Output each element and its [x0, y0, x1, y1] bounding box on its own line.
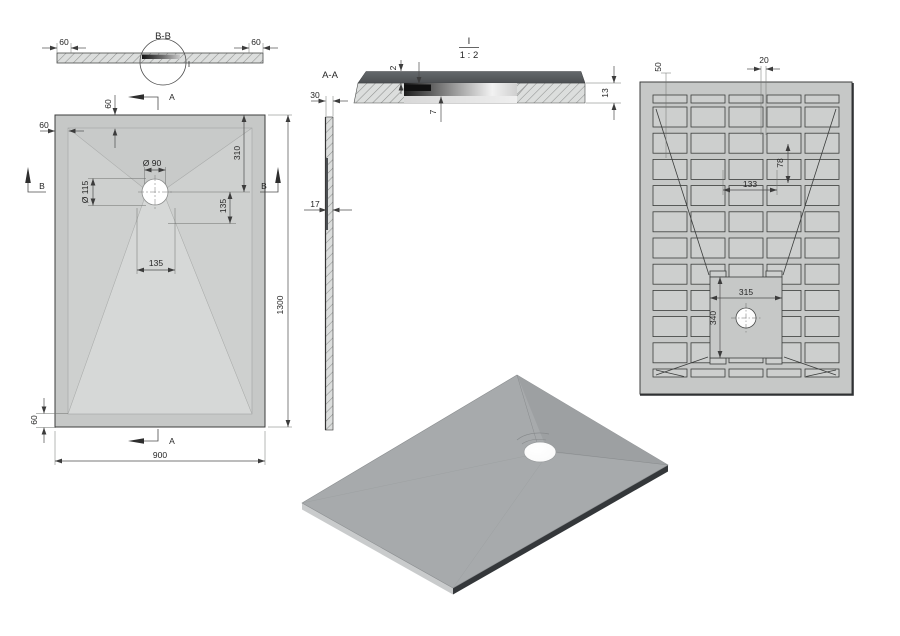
- pocket-cell: [729, 133, 763, 153]
- dim-plan-drain-offset-v: 135: [218, 199, 228, 213]
- pocket-cell: [767, 107, 801, 127]
- pocket-cell: [691, 159, 725, 179]
- section-aa-view: A-A 30 17: [304, 70, 352, 430]
- dim-plan-length: 1300: [275, 295, 285, 314]
- pocket-cell: [653, 264, 687, 284]
- section-a-label-top: A: [169, 92, 175, 102]
- plan-view: A 60 60 Ø 90 Ø 115 3: [25, 92, 292, 465]
- technical-drawing-svg: B-B I 60 60 A 60: [0, 0, 900, 636]
- pocket-cell: [805, 95, 839, 103]
- dim-plan-width: 900: [153, 450, 167, 460]
- pocket-cell: [767, 238, 801, 258]
- section-b-label-left: B: [39, 181, 45, 191]
- pocket-cell: [653, 238, 687, 258]
- dim-plan-rim-left: 60: [39, 120, 49, 130]
- pocket-cell: [653, 290, 687, 310]
- pocket-cell: [729, 369, 763, 377]
- pocket-cell: [729, 107, 763, 127]
- detail-i-title: I: [468, 36, 471, 47]
- dim-bottom-recess-h: 340: [708, 311, 718, 325]
- dim-bb-edge-left: 60: [59, 37, 69, 47]
- detail-callout-label: I: [188, 60, 190, 69]
- section-bb-drain-channel: [142, 55, 180, 60]
- pocket-cell: [805, 133, 839, 153]
- pocket-cell: [691, 238, 725, 258]
- dim-bottom-pocket-h: 78: [775, 158, 785, 168]
- section-b-label-right: B: [261, 181, 267, 191]
- dim-aa-height: 30: [310, 90, 320, 100]
- detail-top-surface: [358, 72, 585, 84]
- pocket-cell: [729, 95, 763, 103]
- pocket-cell: [767, 212, 801, 232]
- pocket-cell: [767, 186, 801, 206]
- pocket-cell: [805, 159, 839, 179]
- bottom-view: 50 20 78 133 315 340: [640, 55, 853, 395]
- pocket-cell: [653, 159, 687, 179]
- pocket-cell: [691, 107, 725, 127]
- pocket-cell: [805, 186, 839, 206]
- dim-bb-edge-right: 60: [251, 37, 261, 47]
- dim-plan-drain-dia: Ø 90: [143, 158, 162, 168]
- section-aa-title: A-A: [322, 70, 339, 81]
- detail-i-view: I 1 : 2 2 7 13: [354, 36, 621, 122]
- dim-plan-drain-offset-h: 135: [149, 258, 163, 268]
- pocket-cell: [653, 107, 687, 127]
- dim-plan-recess-dia: Ø 115: [80, 180, 90, 203]
- section-a-arrow-top: [128, 94, 144, 100]
- section-aa-drain-zone: [326, 158, 328, 230]
- section-b-marker-left: B: [25, 167, 46, 192]
- section-a-label-bottom: A: [169, 436, 175, 446]
- pocket-cell: [729, 238, 763, 258]
- pocket-cell: [653, 343, 687, 363]
- pocket-cell: [805, 343, 839, 363]
- pocket-cell: [767, 95, 801, 103]
- dim-detail-total: 13: [600, 88, 610, 98]
- pocket-cell: [653, 186, 687, 206]
- dim-aa-wall: 17: [310, 199, 320, 209]
- detail-channel-step: [404, 85, 431, 92]
- pocket-cell: [691, 212, 725, 232]
- pocket-cell: [691, 95, 725, 103]
- pocket-cell: [691, 369, 725, 377]
- dim-plan-rim-top: 60: [103, 99, 113, 109]
- pocket-cell: [805, 264, 839, 284]
- pocket-cell: [653, 212, 687, 232]
- pocket-cell: [691, 186, 725, 206]
- detail-i-scale: 1 : 2: [460, 50, 479, 61]
- dim-plan-rim-bottom: 60: [29, 415, 39, 425]
- section-a-arrow-bottom: [128, 438, 144, 444]
- pocket-cell: [653, 95, 687, 103]
- dim-bottom-recess-w: 315: [739, 287, 753, 297]
- dim-bottom-pocket-w: 133: [743, 179, 757, 189]
- pocket-cell: [691, 133, 725, 153]
- pocket-cell: [805, 107, 839, 127]
- pocket-cell: [729, 212, 763, 232]
- drawing-sheet: B-B I 60 60 A 60: [0, 0, 900, 636]
- pocket-cell: [653, 317, 687, 337]
- iso-top-face: [302, 375, 668, 588]
- iso-drain-hole: [524, 442, 556, 462]
- isometric-view: [302, 375, 668, 595]
- dim-bottom-edge: 50: [653, 62, 663, 72]
- dim-detail-depth: 7: [428, 109, 438, 114]
- detail-channel-floor: [404, 96, 517, 103]
- dim-detail-lip: 2: [388, 65, 398, 70]
- pocket-cell: [767, 369, 801, 377]
- pocket-cell: [653, 133, 687, 153]
- section-bb-view: B-B I 60 60: [42, 31, 278, 85]
- plan-slope-surfaces: [68, 128, 252, 414]
- pocket-cell: [805, 238, 839, 258]
- pocket-cell: [729, 159, 763, 179]
- pocket-cell: [805, 317, 839, 337]
- dim-bottom-rib: 20: [759, 55, 769, 65]
- pocket-cell: [767, 133, 801, 153]
- pocket-cell: [805, 212, 839, 232]
- section-bb-title: B-B: [155, 31, 171, 42]
- pocket-cell: [805, 290, 839, 310]
- dim-plan-drain-from-top: 310: [232, 146, 242, 160]
